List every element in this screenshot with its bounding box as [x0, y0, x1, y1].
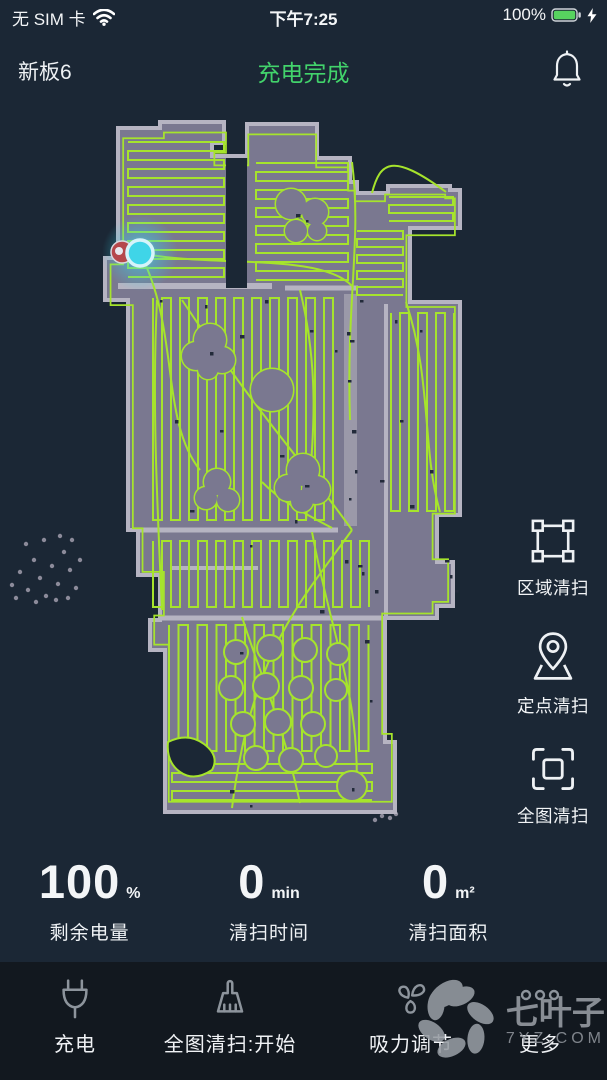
status-bar: 无 SIM 卡 下午7:25 100%: [0, 0, 607, 32]
bottom-nav-bar: 充电 全图清扫:开始: [0, 962, 607, 1080]
robot-marker: [127, 240, 153, 266]
clean-time-label: 清扫时间: [179, 918, 358, 945]
broom-icon: [140, 976, 320, 1024]
stats-row: 100 % 剩余电量 0 min 清扫时间 0 m² 清扫面积: [0, 854, 538, 945]
full-clean-start-label: 全图清扫:开始: [140, 1028, 320, 1057]
battery-icon: [551, 8, 582, 22]
plug-icon: [30, 976, 120, 1024]
zone-clean-button[interactable]: 区域清扫: [505, 516, 601, 600]
spot-clean-icon: [505, 628, 601, 684]
clean-area-label: 清扫面积: [359, 918, 538, 945]
battery-stat: 100 % 剩余电量: [0, 854, 179, 945]
clean-area-value: 0: [422, 854, 449, 909]
clean-area-stat: 0 m² 清扫面积: [359, 854, 538, 945]
battery-value: 100: [39, 854, 120, 909]
full-map-clean-icon: [505, 744, 601, 794]
clean-time-unit: min: [271, 885, 299, 903]
header: 新板6 充电完成: [0, 44, 607, 98]
spot-clean-label: 定点清扫: [505, 693, 601, 718]
clean-time-value: 0: [238, 854, 265, 909]
more-label: 更多: [495, 1028, 585, 1057]
charge-button[interactable]: 充电: [30, 976, 120, 1057]
full-map-clean-label: 全图清扫: [505, 803, 601, 828]
robot-status-text: 充电完成: [0, 54, 607, 88]
zone-clean-label: 区域清扫: [505, 575, 601, 600]
full-clean-start-button[interactable]: 全图清扫:开始: [140, 976, 320, 1057]
charging-bolt-icon: [587, 8, 597, 23]
suction-adjust-label: 吸力调节: [330, 1028, 492, 1057]
zone-clean-icon: [505, 516, 601, 566]
suction-adjust-button[interactable]: 吸力调节: [330, 976, 492, 1057]
charge-label: 充电: [30, 1028, 120, 1057]
robot-vacuum-app-screen: 无 SIM 卡 下午7:25 100%: [0, 0, 607, 1080]
spot-clean-button[interactable]: 定点清扫: [505, 628, 601, 718]
clean-area-unit: m²: [455, 885, 475, 903]
battery-percent-label: 100%: [503, 5, 546, 25]
fan-icon: [330, 976, 492, 1024]
battery-unit: %: [126, 885, 140, 903]
battery-stat-label: 剩余电量: [0, 918, 179, 945]
full-map-clean-button[interactable]: 全图清扫: [505, 744, 601, 828]
bell-icon[interactable]: [547, 48, 587, 92]
more-button[interactable]: 更多: [495, 976, 585, 1057]
more-icon: [495, 976, 585, 1024]
clean-time-stat: 0 min 清扫时间: [179, 854, 358, 945]
